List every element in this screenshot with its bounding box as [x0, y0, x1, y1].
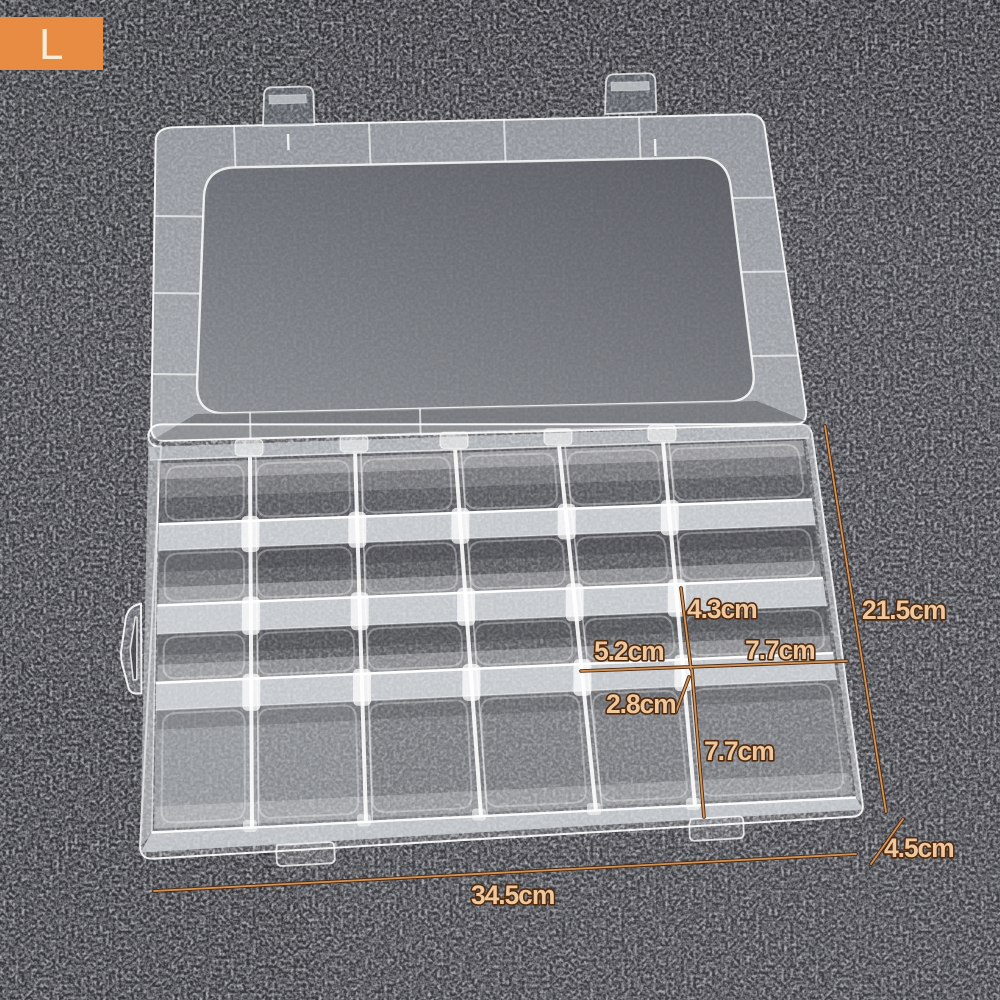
svg-text:7.7cm: 7.7cm [704, 736, 774, 766]
svg-text:7.7cm: 7.7cm [745, 635, 815, 665]
svg-text:34.5cm: 34.5cm [471, 880, 554, 910]
svg-text:2.8cm: 2.8cm [606, 689, 676, 719]
svg-text:4.3cm: 4.3cm [687, 594, 757, 624]
svg-text:21.5cm: 21.5cm [862, 595, 945, 625]
svg-text:4.5cm: 4.5cm [884, 833, 954, 863]
svg-text:L: L [39, 20, 63, 69]
svg-text:5.2cm: 5.2cm [594, 636, 664, 666]
